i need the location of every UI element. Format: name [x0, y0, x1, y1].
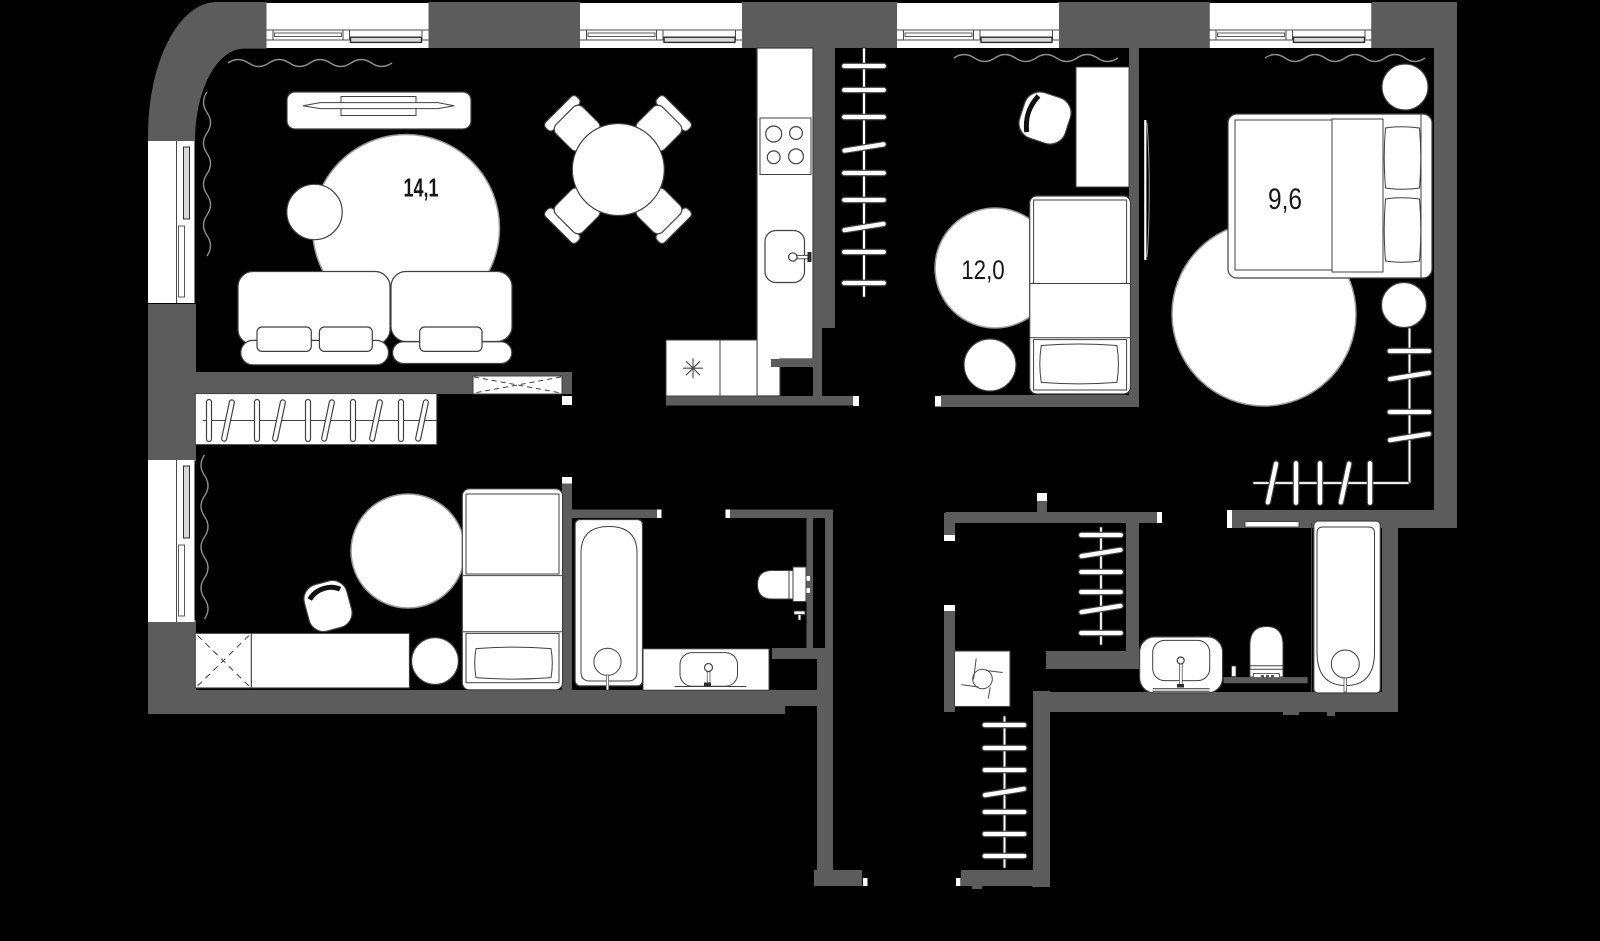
svg-text:12,0: 12,0 — [961, 255, 1005, 285]
svg-text:14,1: 14,1 — [404, 172, 439, 202]
svg-text:9,6: 9,6 — [1268, 183, 1302, 216]
